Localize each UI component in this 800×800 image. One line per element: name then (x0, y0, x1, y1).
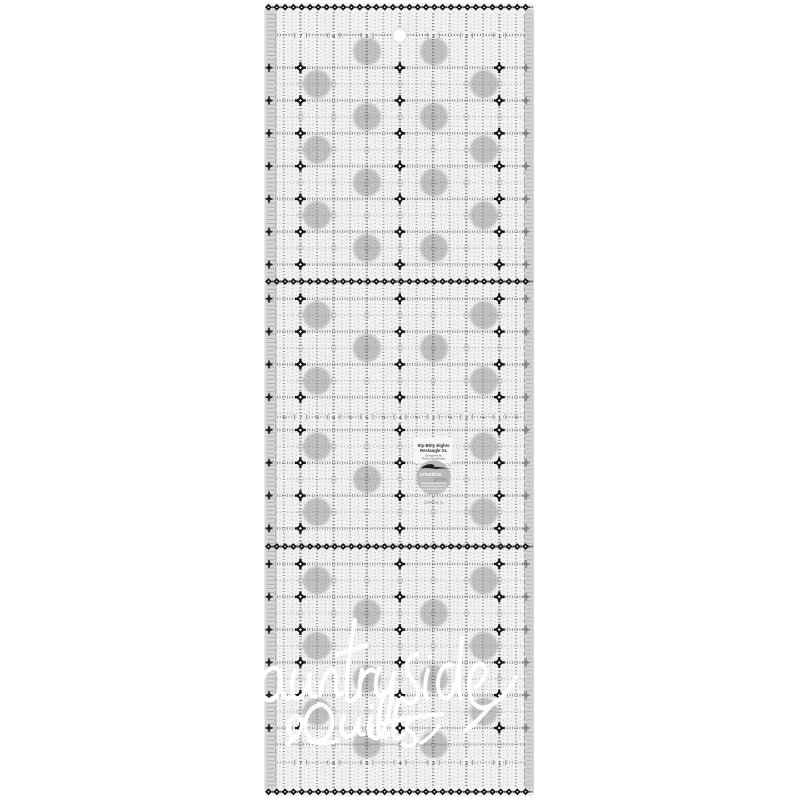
svg-text:½: ½ (448, 414, 452, 420)
svg-text:½: ½ (348, 414, 352, 420)
svg-text:½: ½ (481, 414, 485, 420)
svg-text:2: 2 (465, 761, 468, 767)
svg-text:Rectangle XL: Rectangle XL (420, 448, 448, 453)
svg-text:½: ½ (514, 414, 518, 420)
svg-text:2: 2 (465, 34, 468, 40)
svg-text:½: ½ (282, 414, 286, 420)
svg-text:½: ½ (315, 414, 319, 420)
svg-text:2: 2 (465, 416, 468, 422)
svg-text:7: 7 (299, 416, 302, 422)
svg-text:½: ½ (382, 414, 386, 420)
svg-text:7: 7 (299, 34, 302, 40)
svg-text:Penny Sturtevant: Penny Sturtevant (422, 457, 445, 461)
svg-text:CGRPRGE XL: CGRPRGE XL (424, 501, 444, 505)
svg-text:7: 7 (299, 761, 302, 767)
svg-text:www.creativegridsusa.com: www.creativegridsusa.com (419, 488, 449, 491)
svg-text:½: ½ (415, 414, 419, 420)
svg-text:grids: grids (433, 477, 447, 483)
